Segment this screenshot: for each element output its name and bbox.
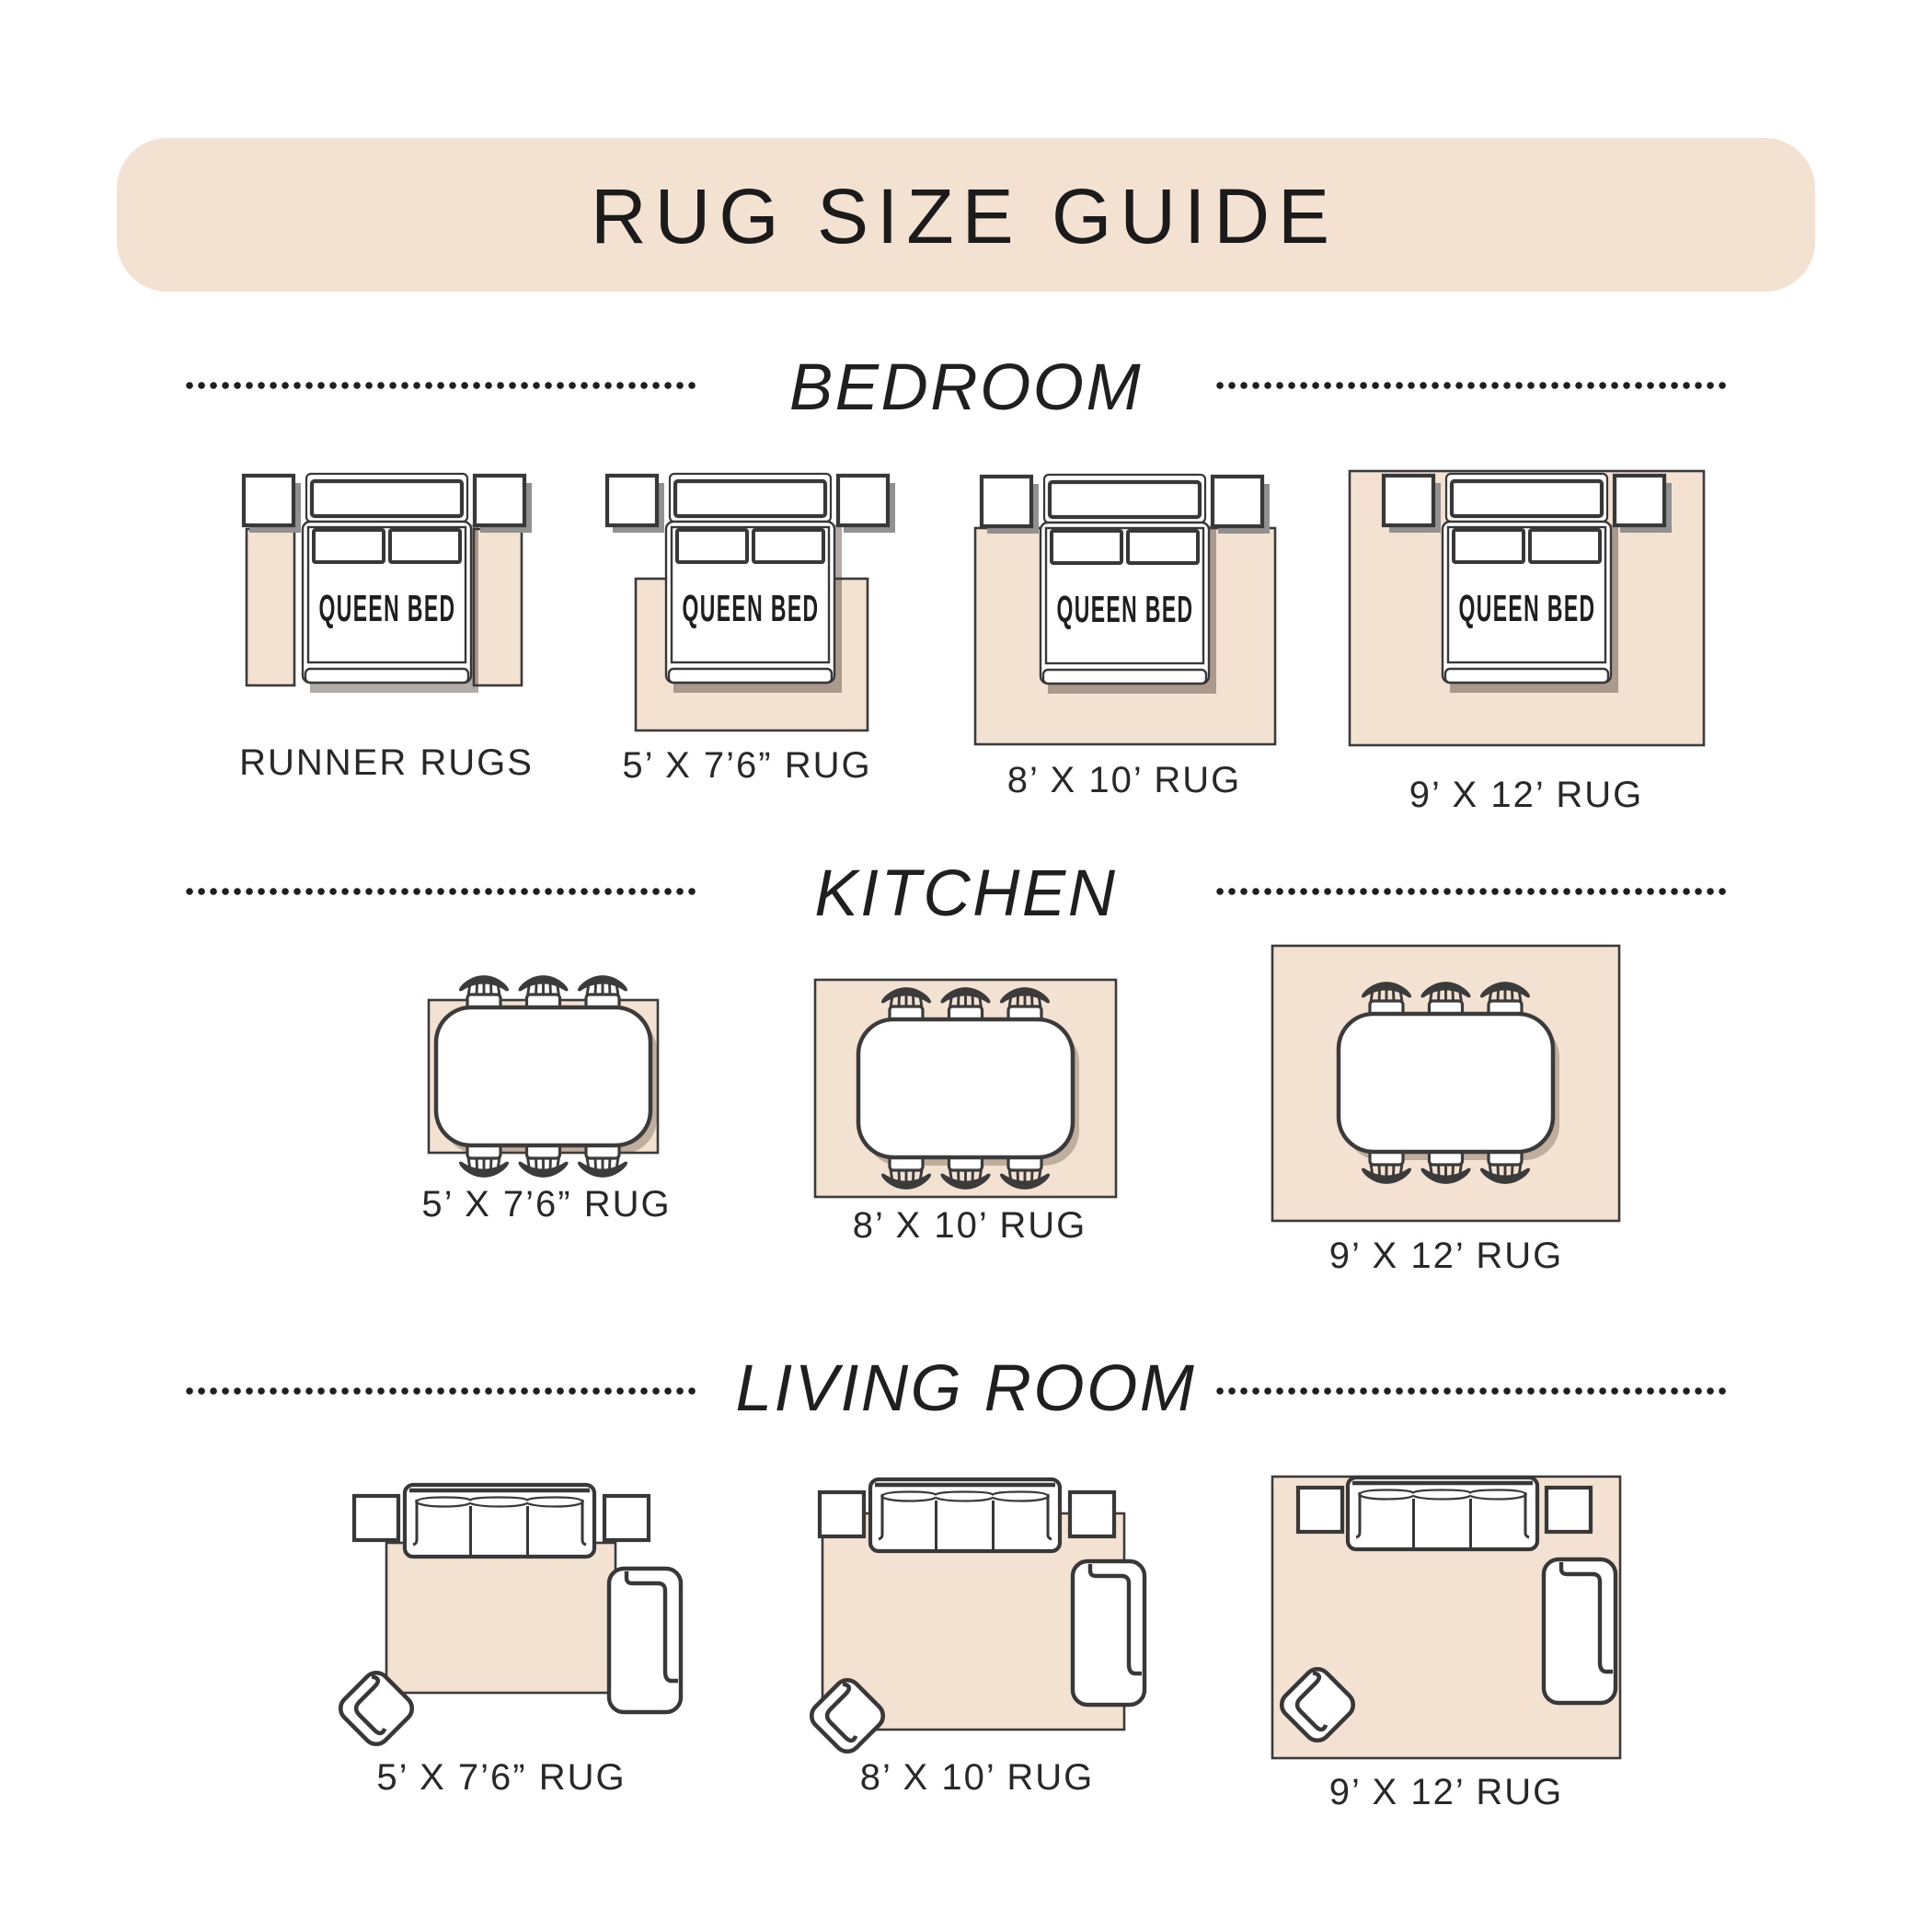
svg-text:8’ X 10’ RUG: 8’ X 10’ RUG: [860, 1757, 1094, 1798]
svg-text:8’ X 10’ RUG: 8’ X 10’ RUG: [853, 1205, 1087, 1246]
svg-text:5’ X 7’6” RUG: 5’ X 7’6” RUG: [376, 1757, 626, 1798]
svg-text:9’ X 12’ RUG: 9’ X 12’ RUG: [1409, 775, 1643, 815]
svg-text:9’ X 12’ RUG: 9’ X 12’ RUG: [1329, 1772, 1563, 1812]
svg-text:RUG SIZE GUIDE: RUG SIZE GUIDE: [591, 173, 1338, 259]
svg-text:5’ X 7’6” RUG: 5’ X 7’6” RUG: [421, 1184, 671, 1225]
svg-text:8’ X 10’ RUG: 8’ X 10’ RUG: [1007, 760, 1241, 800]
svg-text:KITCHEN: KITCHEN: [814, 857, 1117, 930]
svg-text:LIVING ROOM: LIVING ROOM: [736, 1352, 1197, 1425]
svg-text:BEDROOM: BEDROOM: [789, 351, 1143, 424]
svg-text:9’ X 12’ RUG: 9’ X 12’ RUG: [1329, 1236, 1563, 1276]
svg-text:RUNNER RUGS: RUNNER RUGS: [239, 742, 534, 783]
svg-text:5’ X 7’6” RUG: 5’ X 7’6” RUG: [622, 745, 871, 786]
